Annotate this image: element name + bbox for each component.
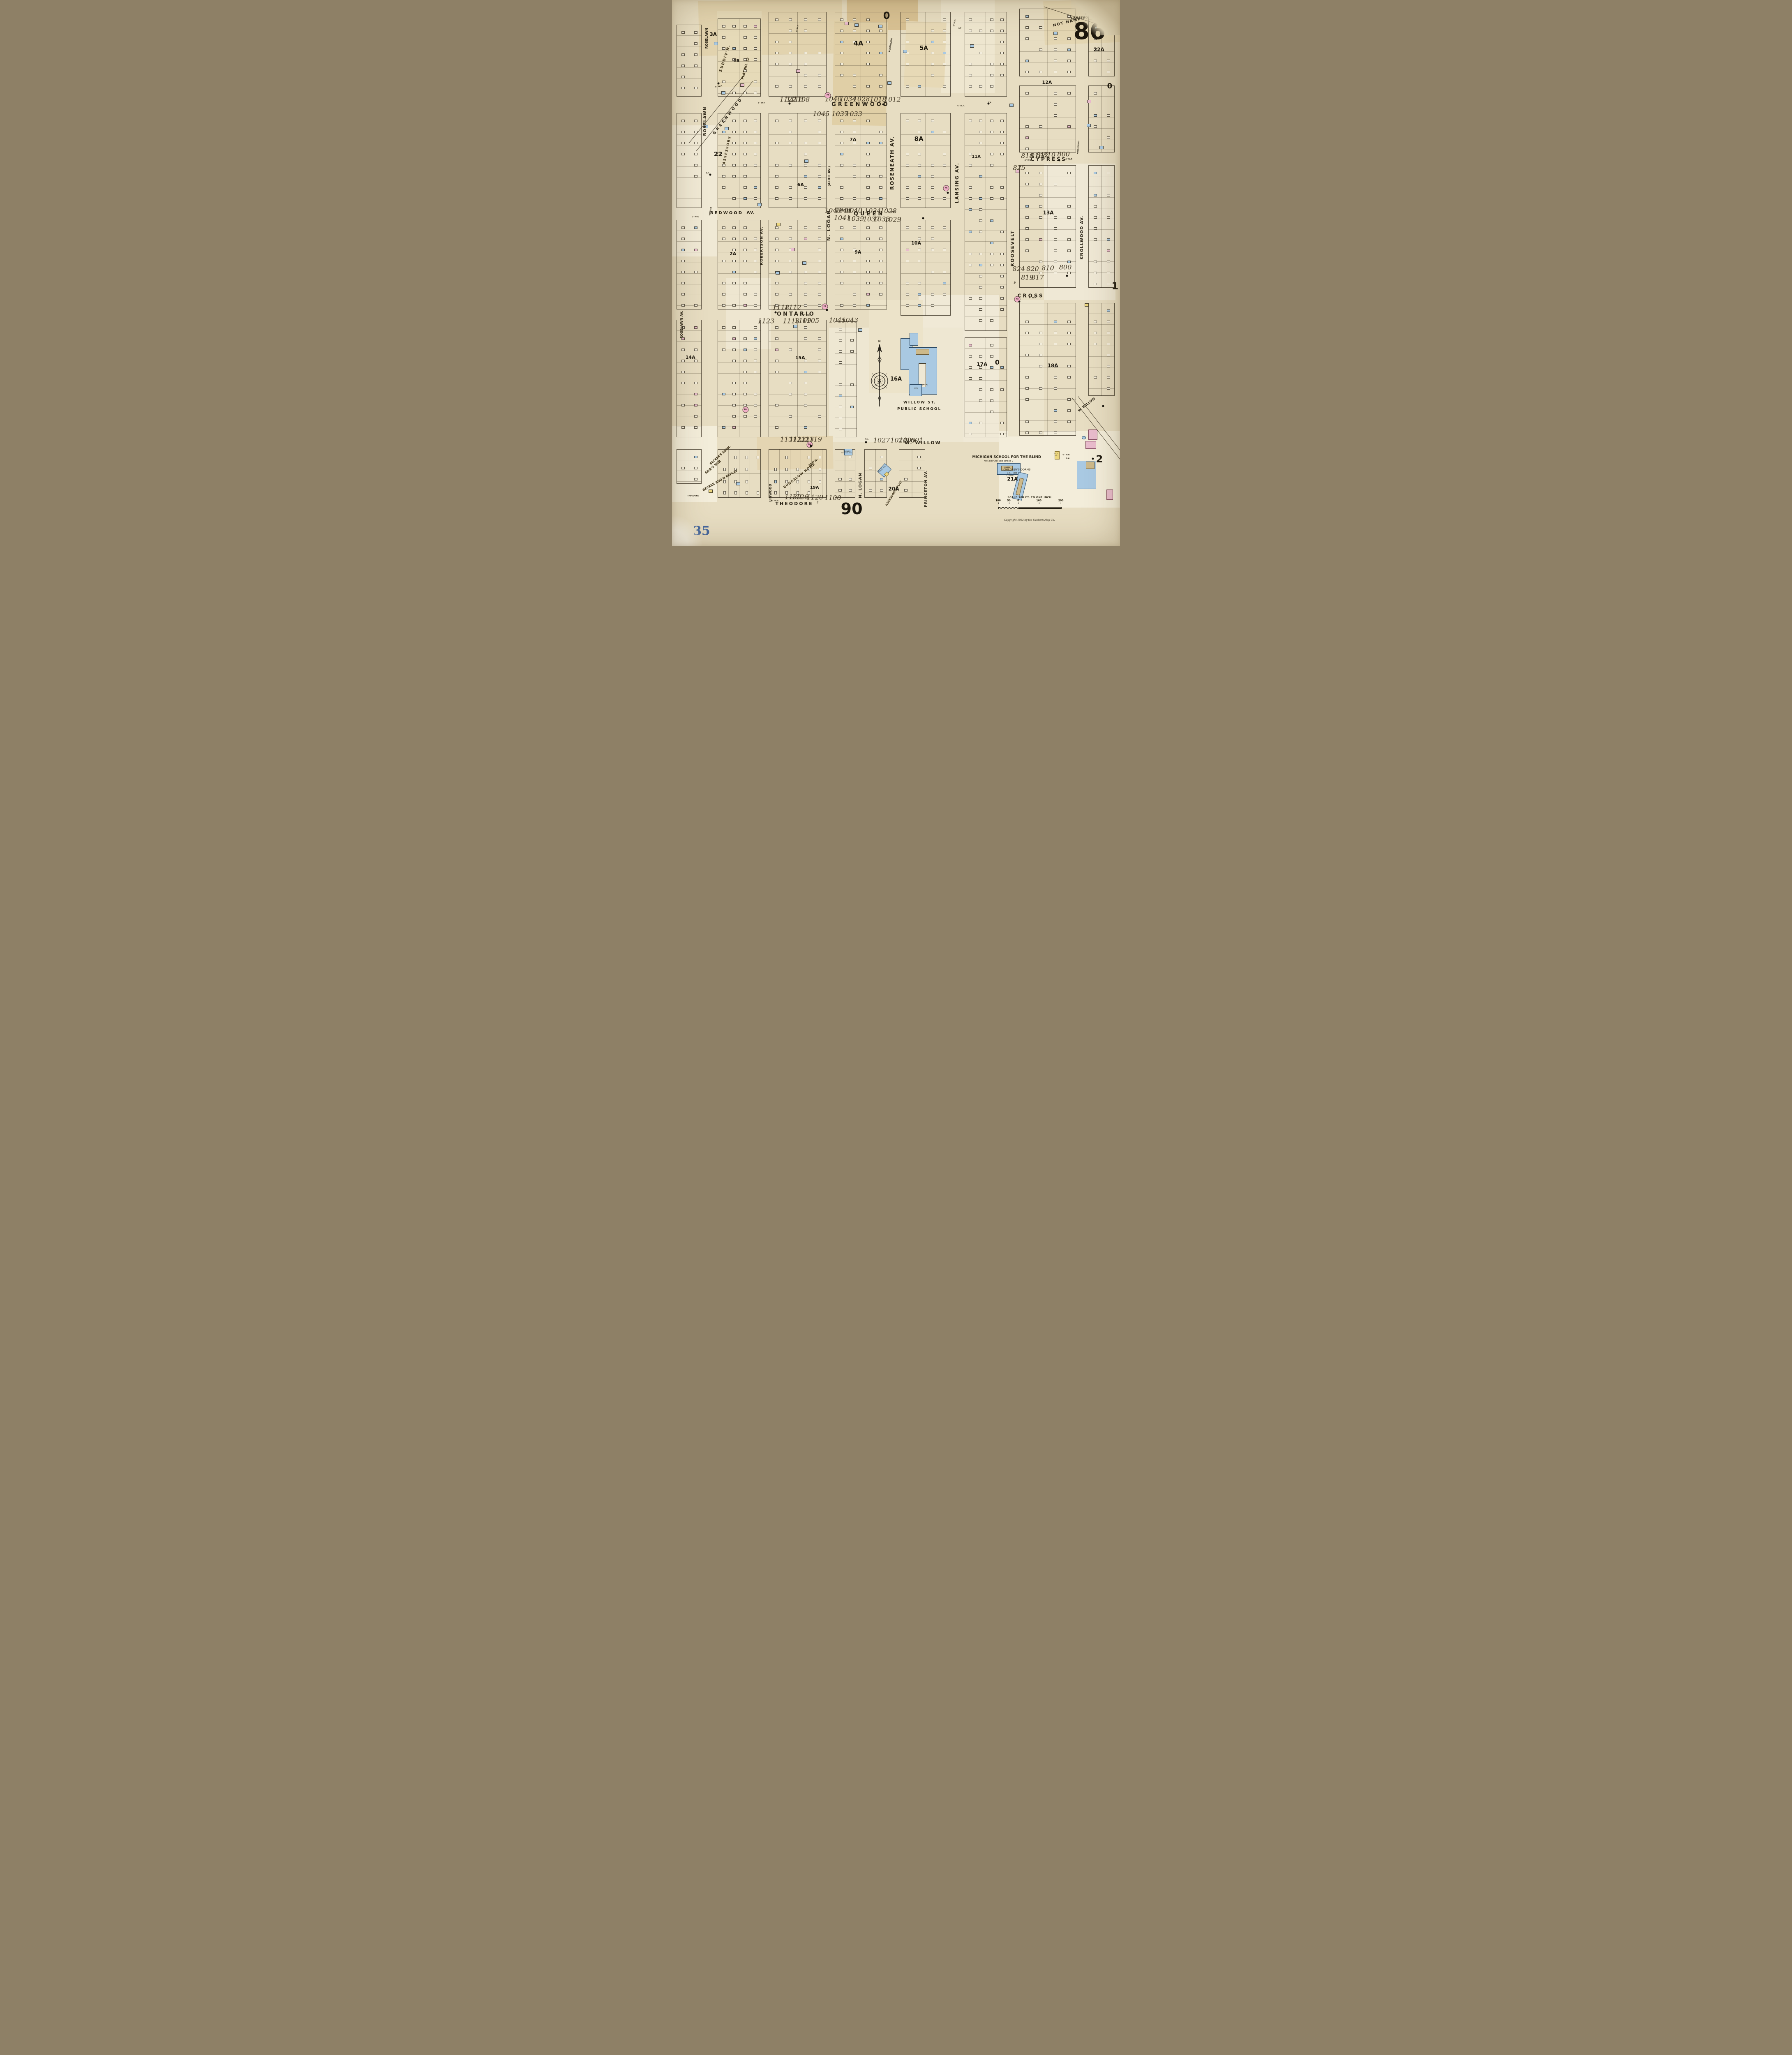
lot-building: [917, 467, 921, 469]
lot-building: [1025, 398, 1029, 401]
lot-building: [979, 275, 982, 277]
lot-building: [931, 238, 934, 240]
address-number: 1120: [806, 494, 823, 501]
landmark-label: FILLING & GREAS'G STA.: [841, 450, 852, 454]
lot-building: [969, 208, 972, 211]
lot-building: [694, 87, 697, 89]
lot-building: [1067, 365, 1071, 367]
lot-building: [757, 456, 759, 459]
section-number: 90: [841, 502, 863, 516]
lot-building: [1000, 153, 1004, 155]
lot-building: [722, 81, 725, 83]
lot-building: [918, 260, 921, 262]
lot-building: [1107, 114, 1110, 117]
lot-building: [969, 63, 972, 65]
lot-building: [853, 164, 856, 166]
street-label: KNOLLWOOD: [1077, 141, 1081, 154]
lot-building: [818, 131, 821, 133]
lot-building: [722, 304, 725, 307]
lot-building: [1000, 366, 1004, 369]
lot-building: [931, 226, 934, 229]
lot-building: [1054, 114, 1057, 117]
lot-building: [839, 350, 842, 353]
block-number-label: 16A: [890, 376, 902, 382]
lot-building: [969, 120, 972, 122]
utility-note: 4" W.P.: [1065, 159, 1073, 161]
lot-building: [1025, 387, 1029, 390]
address-number: 1123: [758, 318, 775, 325]
lot-building: [866, 293, 870, 296]
hydrant-dot: [788, 103, 790, 105]
lot-building: [681, 65, 685, 67]
lot-building: [818, 164, 821, 166]
utility-note: 50': [817, 501, 819, 504]
lot-building: [904, 478, 908, 480]
lot-building: [1094, 321, 1097, 323]
lot-building: [906, 18, 909, 21]
lot-building: [931, 304, 934, 307]
lot-building: [818, 18, 821, 21]
street-label: THEODORE: [776, 501, 813, 506]
lot-building: [681, 426, 685, 429]
hydrant-dot: [1018, 301, 1020, 303]
lot-building: [906, 120, 909, 122]
lot-building: [774, 480, 777, 483]
svg-text:§: §: [878, 378, 881, 385]
street-label: N. LOGAN: [827, 210, 831, 241]
colored-building: [1053, 32, 1058, 35]
lot-building: [906, 293, 909, 296]
lot-building: [1094, 172, 1097, 174]
colored-building: [1085, 303, 1089, 307]
lot-building: [775, 197, 778, 200]
lot-building: [969, 422, 972, 424]
lot-building: [1067, 125, 1071, 128]
landmark-label: WILLOW ST.: [903, 401, 936, 404]
lot-building: [1039, 26, 1042, 29]
lot-building: [1067, 420, 1071, 423]
lot-building: [879, 30, 882, 32]
hydrant-dot: [826, 309, 828, 311]
lot-building: [979, 208, 982, 211]
lot-building: [723, 468, 726, 471]
lot-building: [804, 382, 807, 384]
street-label: ROSENEATH: [889, 38, 893, 52]
lot-building: [880, 478, 883, 480]
lot-building: [789, 349, 792, 351]
lot-building: [1000, 74, 1004, 76]
lot-building: [804, 426, 807, 429]
lot-building: [1000, 120, 1004, 122]
lot-building: [818, 337, 821, 340]
city-block: [835, 449, 855, 498]
address-number: 800: [1059, 264, 1072, 271]
lot-building: [866, 271, 870, 273]
landmark-label: FOR REPORT SEE SHEET 2: [984, 461, 1014, 463]
lot-building: [789, 164, 792, 166]
lot-building: [732, 415, 736, 418]
lot-building: [1000, 308, 1004, 311]
section-number: 1: [1112, 282, 1119, 291]
lot-building: [775, 85, 778, 88]
city-block: [901, 113, 951, 208]
lot-building: [1039, 432, 1042, 434]
lot-building: [840, 18, 843, 21]
lot-building: [931, 131, 934, 133]
building-footprint: [1106, 490, 1113, 500]
lot-building: [879, 238, 882, 240]
lot-building: [818, 293, 821, 296]
colored-building: [793, 325, 797, 328]
city-block: [965, 12, 1007, 97]
sanborn-map-sheet: § GREENWOODGREENWOODQUEENQUEENONTARIORED…: [672, 0, 1120, 546]
lot-building: [804, 52, 807, 54]
hydrant-dot: [1058, 159, 1060, 162]
lot-building: [853, 175, 856, 178]
city-block: [769, 449, 827, 498]
utility-note: 6" W.P.: [910, 441, 918, 443]
lot-building: [906, 197, 909, 200]
lot-building: [849, 489, 852, 492]
lot-building: [775, 63, 778, 65]
lot-building: [979, 286, 982, 289]
lot-building: [1054, 343, 1057, 345]
lot-building: [732, 120, 736, 122]
lot-building: [1025, 205, 1029, 208]
lot-building: [979, 142, 982, 144]
address-number: 1028: [853, 96, 870, 103]
lot-building: [1000, 388, 1004, 391]
street-label: AV.: [747, 211, 755, 215]
lot-building: [853, 271, 856, 273]
lot-building: [1025, 26, 1029, 29]
lot-building: [1107, 283, 1110, 285]
lot-building: [818, 142, 821, 144]
lot-building: [840, 131, 843, 133]
lot-building: [804, 186, 807, 189]
lot-building: [744, 164, 747, 166]
lot-building: [931, 271, 934, 273]
scale-tick-label: 200: [1058, 499, 1064, 502]
lot-building: [853, 74, 856, 76]
lot-building: [722, 226, 725, 229]
colored-building: [854, 23, 859, 27]
lot-building: [775, 249, 778, 251]
address-number: 1039: [848, 215, 864, 222]
lot-building: [866, 153, 870, 155]
lot-building: [969, 366, 972, 369]
lot-building: [879, 260, 882, 262]
landmark-label: PUBLIC SCHOOL: [897, 407, 941, 411]
lot-building: [722, 282, 725, 284]
lot-building: [979, 422, 982, 424]
lot-building: [694, 456, 697, 458]
lot-building: [723, 480, 726, 483]
lot-building: [969, 297, 972, 300]
city-block: [1088, 85, 1115, 152]
lot-building: [853, 226, 856, 229]
lot-building: [1025, 136, 1029, 139]
hydrant-dot: [882, 103, 884, 105]
lot-building: [1067, 332, 1071, 334]
lot-building: [754, 92, 757, 94]
lot-building: [775, 18, 778, 21]
lot-building: [754, 153, 757, 155]
lot-building: [818, 197, 821, 200]
lot-building: [1039, 183, 1042, 185]
lot-building: [990, 264, 993, 266]
lot-building: [918, 131, 921, 133]
lot-building: [744, 186, 747, 189]
lot-building: [694, 349, 697, 351]
lot-building: [839, 383, 842, 386]
building-footprint: [1086, 462, 1095, 469]
lot-building: [840, 238, 843, 240]
lot-building: [1054, 37, 1057, 40]
lot-building: [1039, 261, 1042, 263]
lot-building: [694, 164, 697, 166]
street-label: (ALICE AV.): [827, 166, 831, 187]
lot-building: [1000, 231, 1004, 233]
lot-building: [1054, 183, 1057, 185]
lot-building: [694, 31, 697, 34]
lot-building: [785, 468, 788, 471]
lot-building: [918, 304, 921, 307]
colored-building: [878, 25, 882, 28]
city-block: [718, 220, 761, 309]
address-number: 1112: [785, 305, 801, 312]
lot-building: [789, 186, 792, 189]
lot-building: [853, 197, 856, 200]
lot-building: [1107, 343, 1110, 345]
lot-building: [1067, 398, 1071, 401]
lot-building: [754, 293, 757, 296]
lot-building: [775, 41, 778, 43]
lot-building: [979, 219, 982, 222]
lot-building: [866, 41, 870, 43]
lot-building: [681, 131, 685, 133]
lot-building: [744, 25, 747, 28]
lot-building: [732, 326, 736, 329]
city-block: [677, 449, 702, 484]
lot-building: [990, 18, 993, 21]
hydrant-dot: [1066, 275, 1068, 277]
lot-building: [722, 426, 725, 429]
lot-building: [1067, 92, 1071, 95]
lot-building: [979, 264, 982, 266]
scale-bar-line: [998, 507, 1062, 509]
lot-building: [1067, 37, 1071, 40]
lot-building: [775, 282, 778, 284]
colored-building: [721, 91, 725, 95]
lot-building: [1025, 60, 1029, 62]
section-number: 0: [1107, 83, 1113, 90]
utility-note: 6" W.P.: [1029, 298, 1037, 300]
lot-building: [879, 271, 882, 273]
lot-building: [754, 58, 757, 61]
lot-building: [754, 271, 757, 273]
lot-building: [969, 344, 972, 346]
block-number-label: 22: [714, 151, 723, 158]
page-corner-fold: [1071, 0, 1120, 35]
lot-building: [732, 226, 736, 229]
lot-building: [789, 238, 792, 240]
lot-building: [943, 282, 946, 284]
lot-building: [1067, 71, 1071, 73]
lot-building: [866, 304, 870, 307]
lot-building: [1067, 172, 1071, 174]
lot-building: [990, 164, 993, 166]
lot-building: [754, 360, 757, 362]
city-block: [965, 113, 1007, 331]
address-number: 1126: [792, 494, 808, 501]
block-number-label: 18A: [1048, 363, 1058, 368]
lot-building: [918, 226, 921, 229]
lot-building: [1039, 216, 1042, 219]
lot-building: [722, 36, 725, 39]
lot-building: [969, 164, 972, 166]
lot-building: [819, 468, 821, 471]
hydrant-dot: [774, 311, 776, 313]
lot-building: [853, 18, 856, 21]
address-number: 1040: [845, 207, 862, 214]
utility-note: 6" W.P.: [771, 501, 779, 503]
lot-building: [804, 337, 807, 340]
lot-building: [681, 142, 685, 144]
colored-building: [1009, 104, 1014, 107]
lot-building: [694, 404, 697, 406]
scale-tick-label: 50: [1007, 499, 1010, 502]
lot-building: [879, 282, 882, 284]
lot-building: [931, 293, 934, 296]
block-number-label: 17A: [977, 362, 987, 367]
lot-building: [744, 131, 747, 133]
lot-building: [734, 491, 737, 494]
lot-building: [804, 371, 807, 373]
city-block: [769, 320, 827, 437]
lot-building: [990, 131, 993, 133]
lot-building: [979, 131, 982, 133]
lot-building: [931, 249, 934, 251]
lot-building: [804, 164, 807, 166]
address-number: 1100: [824, 495, 841, 502]
lot-building: [775, 404, 778, 406]
lot-building: [1025, 37, 1029, 40]
lot-building: [969, 74, 972, 76]
city-block: [718, 449, 761, 498]
colored-building: [903, 50, 907, 53]
lot-building: [789, 18, 792, 21]
lot-building: [866, 260, 870, 262]
lot-building: [819, 456, 821, 459]
lot-building: [931, 164, 934, 166]
lot-building: [1067, 409, 1071, 412]
street-label: ROBERTSON AV.: [760, 226, 764, 265]
scale-tick-label: 100: [995, 499, 1001, 502]
lot-building: [943, 271, 946, 273]
lot-building: [723, 491, 726, 494]
lot-building: [879, 85, 882, 88]
lot-building: [943, 18, 946, 21]
lot-building: [943, 30, 946, 32]
lot-building: [744, 238, 747, 240]
lot-building: [1000, 297, 1004, 300]
lot-building: [1054, 216, 1057, 219]
lot-building: [744, 360, 747, 362]
lot-building: [722, 349, 725, 351]
address-number: 1045: [813, 111, 830, 118]
lot-building: [808, 456, 810, 459]
lot-building: [774, 468, 777, 471]
fire-alarm-marker: FA: [943, 185, 949, 192]
lot-building: [931, 120, 934, 122]
lot-building: [804, 304, 807, 307]
lot-building: [839, 339, 842, 342]
colored-building: [725, 127, 729, 130]
colored-building: [740, 83, 744, 87]
lot-building: [1054, 227, 1057, 230]
lot-building: [757, 491, 759, 494]
lot-building: [1107, 71, 1110, 73]
lot-building: [918, 164, 921, 166]
lot-building: [775, 175, 778, 178]
lot-building: [1025, 332, 1029, 334]
lot-building: [1094, 227, 1097, 230]
lot-building: [906, 304, 909, 307]
lot-building: [990, 388, 993, 391]
lot-building: [754, 142, 757, 144]
lot-building: [1107, 321, 1110, 323]
lot-building: [1094, 376, 1097, 379]
lot-building: [775, 260, 778, 262]
colored-building: [1099, 146, 1104, 149]
colored-building: [776, 223, 781, 226]
lot-building: [990, 411, 993, 413]
block-number-label: 20A: [889, 487, 899, 492]
lot-building: [754, 120, 757, 122]
lot-building: [694, 426, 697, 429]
lot-building: [681, 249, 685, 251]
lot-building: [732, 271, 736, 273]
lot-building: [906, 63, 909, 65]
lot-building: [906, 260, 909, 262]
lot-building: [943, 153, 946, 155]
lot-building: [1107, 272, 1110, 274]
lot-building: [744, 404, 747, 406]
lot-building: [1039, 343, 1042, 345]
colored-building: [804, 159, 808, 163]
utility-note: 6" W.P.: [803, 315, 810, 317]
lot-building: [818, 175, 821, 178]
fire-alarm-marker: FA: [806, 442, 813, 448]
lot-building: [804, 404, 807, 406]
lot-building: [722, 260, 725, 262]
lot-building: [990, 219, 993, 222]
lot-building: [694, 153, 697, 155]
lot-building: [853, 260, 856, 262]
lot-building: [694, 42, 697, 45]
lot-building: [990, 186, 993, 189]
lot-building: [943, 41, 946, 43]
lot-building: [775, 426, 778, 429]
lot-building: [1067, 321, 1071, 323]
lot-building: [775, 186, 778, 189]
lot-building: [1000, 186, 1004, 189]
lot-building: [789, 63, 792, 65]
lot-building: [744, 382, 747, 384]
lot-building: [1025, 216, 1029, 219]
lot-building: [866, 142, 870, 144]
